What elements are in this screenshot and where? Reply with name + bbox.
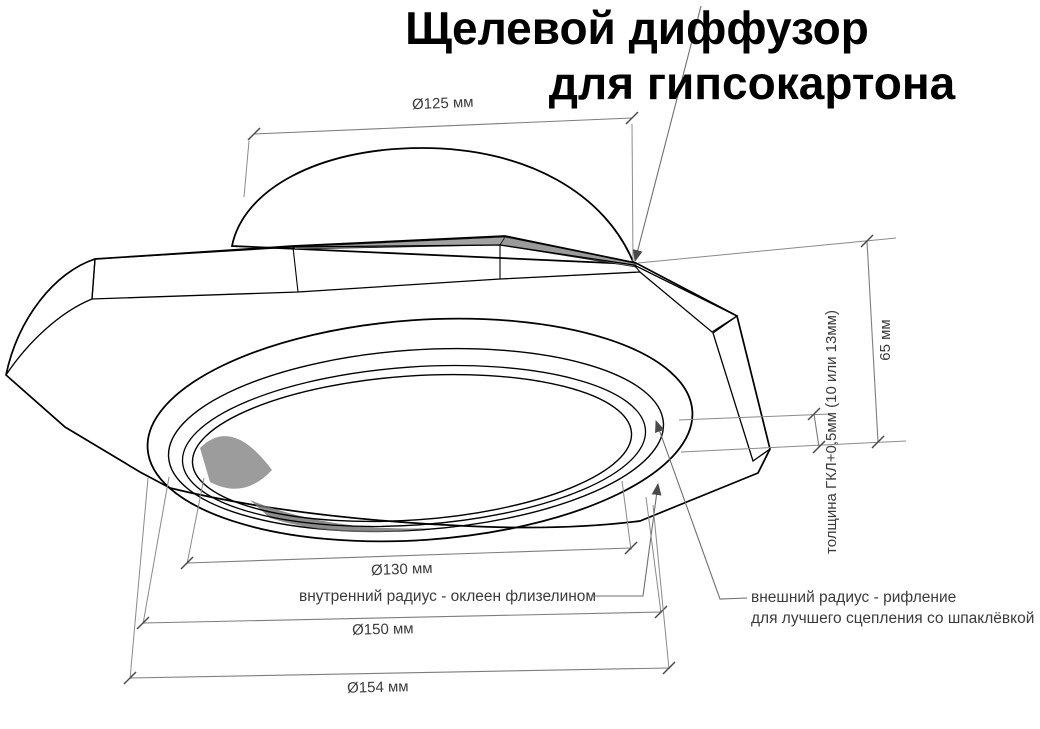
note-outer-radius-line1: внешний радиус - рифление [751, 589, 956, 606]
dimension-annotations: Ø125 мм 65 мм толщина ГКЛ+0,5мм (10 или … [124, 6, 1034, 697]
ext-line [653, 505, 669, 669]
diagram-page: Ø125 мм 65 мм толщина ГКЛ+0,5мм (10 или … [0, 0, 1040, 729]
dim-label-h65: 65 мм [877, 319, 894, 360]
dim-label-d125: Ø125 мм [412, 94, 474, 114]
diffuser-drawing-canvas: Ø125 мм 65 мм толщина ГКЛ+0,5мм (10 или … [0, 0, 1040, 729]
note-outer-leader [656, 421, 747, 599]
inner-disc [188, 361, 637, 535]
dimension-outer-diameter: Ø150 мм [137, 477, 667, 639]
dim-line [254, 118, 632, 134]
ext-line [638, 238, 896, 263]
ext-line [632, 124, 633, 261]
ext-line [681, 441, 906, 452]
dim-label-d154: Ø154 мм [347, 678, 409, 697]
plate-left-bevel [6, 259, 95, 375]
mounting-plate [6, 236, 770, 528]
ext-line [130, 478, 148, 679]
slot-highlight-left [200, 436, 272, 489]
note-inner-radius: внутренний радиус - оклеен флизелином [299, 484, 658, 605]
title-line1: Щелевой диффузор [405, 2, 869, 54]
diffuser-3d-view [6, 148, 770, 559]
ext-line [244, 141, 249, 197]
drawing-title: Щелевой диффузор для гипсокартона [405, 2, 956, 109]
dimension-duct-diameter: Ø125 мм [244, 94, 638, 261]
note-inner-radius-label: внутренний радиус - оклеен флизелином [299, 588, 596, 605]
note-outer-radius: внешний радиус - рифление для лучшего сц… [656, 421, 1034, 627]
dim-line [814, 414, 819, 447]
ext-line [679, 414, 830, 420]
dim-label-d150: Ø150 мм [352, 620, 414, 639]
chamfer-crease-left [293, 247, 298, 292]
plate-right-bevel [713, 316, 770, 461]
dim-label-d130: Ø130 мм [371, 560, 433, 579]
ext-line [622, 481, 631, 550]
dim-line [130, 668, 669, 678]
plate-top-chamfer [92, 245, 737, 332]
title-line2: для гипсокартона [549, 57, 956, 109]
dimension-board-thickness: толщина ГКЛ+0,5мм (10 или 13мм) [679, 310, 840, 554]
note-outer-radius-line2: для лучшего сцепления со шпаклёвкой [751, 610, 1034, 627]
dim-label-thickness: толщина ГКЛ+0,5мм (10 или 13мм) [823, 310, 840, 554]
dimension-height: 65 мм [638, 235, 906, 452]
ext-line [143, 477, 169, 624]
